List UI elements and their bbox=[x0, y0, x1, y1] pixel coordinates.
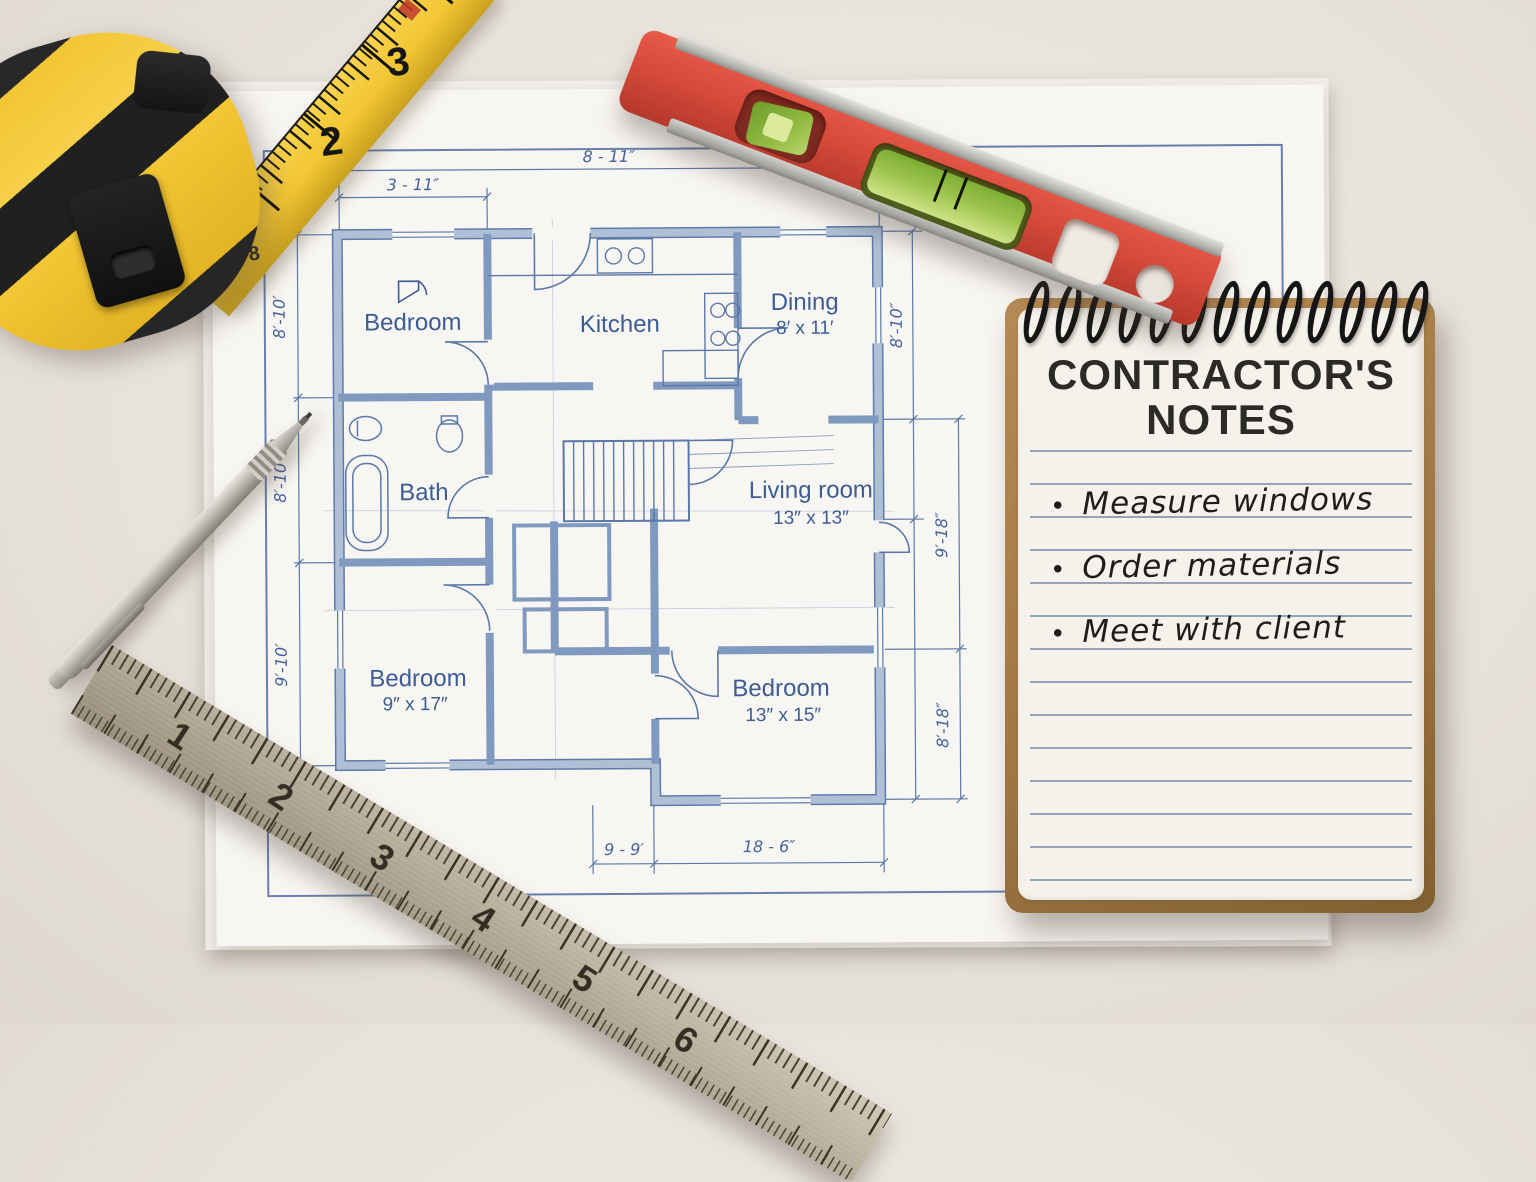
spiral-coil-icon bbox=[1335, 278, 1370, 345]
room-label-kitchen: Kitchen bbox=[580, 311, 660, 338]
ruler-number: 2 bbox=[261, 774, 301, 820]
pencil-lead bbox=[305, 412, 312, 419]
door-glyph bbox=[399, 281, 427, 302]
room-label-living: Living room bbox=[749, 476, 873, 504]
room-size-bedroom-bl: 9″ x 17″ bbox=[382, 694, 448, 715]
room-size-living: 13″ x 13″ bbox=[773, 508, 849, 529]
belt-clip-slot bbox=[108, 243, 157, 280]
notebook-title-line2: NOTES bbox=[1018, 397, 1424, 442]
note-item: • Measure windows bbox=[1050, 481, 1374, 523]
note-item-text: Measure windows bbox=[1082, 481, 1374, 522]
door-arc bbox=[655, 675, 698, 718]
room-label-bath: Bath bbox=[399, 479, 449, 506]
door-arc bbox=[534, 233, 590, 289]
door-arc bbox=[672, 650, 718, 696]
spiral-coil-icon bbox=[1271, 278, 1306, 345]
dim-left-lower: 9′-10′ bbox=[272, 643, 291, 687]
door-arc bbox=[445, 342, 488, 385]
closet-walls bbox=[514, 525, 610, 652]
door-arc bbox=[689, 440, 733, 484]
notebook-title: CONTRACTOR'S NOTES bbox=[1018, 352, 1424, 442]
bullet-icon: • bbox=[1050, 555, 1067, 585]
dim-bottom-left: 9 - 9′ bbox=[604, 840, 644, 859]
room-size-dining: 8′ x 11′ bbox=[776, 318, 834, 339]
spiral-coil-icon bbox=[1303, 278, 1338, 345]
bullet-icon: • bbox=[1050, 619, 1067, 649]
spiral-coil-icon bbox=[1366, 278, 1401, 345]
note-item-text: Order materials bbox=[1082, 545, 1342, 586]
room-label-bedroom-br: Bedroom bbox=[732, 675, 830, 703]
dim-left-upper: 8′-10′ bbox=[270, 295, 289, 339]
dim-right-upper: 8′-10″ bbox=[887, 302, 906, 348]
bullet-icon: • bbox=[1050, 492, 1067, 522]
room-size-bedroom-br: 13″ x 15″ bbox=[745, 705, 821, 726]
room-label-bedroom-tl: Bedroom bbox=[364, 309, 462, 337]
door-arc bbox=[443, 585, 489, 631]
dim-right-lower: 8′-18″ bbox=[933, 702, 952, 748]
room-label-bedroom-bl: Bedroom bbox=[369, 665, 467, 693]
ruler-number: 5 bbox=[565, 956, 605, 1002]
room-label-dining: Dining bbox=[771, 289, 839, 316]
ruler-number: 4 bbox=[463, 895, 503, 941]
notebook: CONTRACTOR'S NOTES • Measure windows • O… bbox=[1018, 308, 1424, 900]
tape-measure-lock-button bbox=[132, 49, 212, 114]
ruler-number: 3 bbox=[362, 834, 402, 880]
note-item: • Meet with client bbox=[1050, 609, 1347, 650]
note-item-text: Meet with client bbox=[1082, 609, 1346, 650]
dim-top-left: 3 - 11″ bbox=[387, 175, 440, 194]
dim-right-middle: 9′-18″ bbox=[932, 512, 951, 558]
note-item: • Order materials bbox=[1050, 545, 1342, 586]
dim-top-full: 8 - 11″ bbox=[583, 147, 636, 166]
ruler-number: 1 bbox=[160, 713, 200, 759]
spiral-coil-icon bbox=[1240, 278, 1275, 345]
spiral-coil-icon bbox=[1208, 278, 1243, 345]
dim-bottom-right: 18 - 6″ bbox=[743, 837, 796, 856]
notebook-title-line1: CONTRACTOR'S bbox=[1018, 352, 1424, 397]
